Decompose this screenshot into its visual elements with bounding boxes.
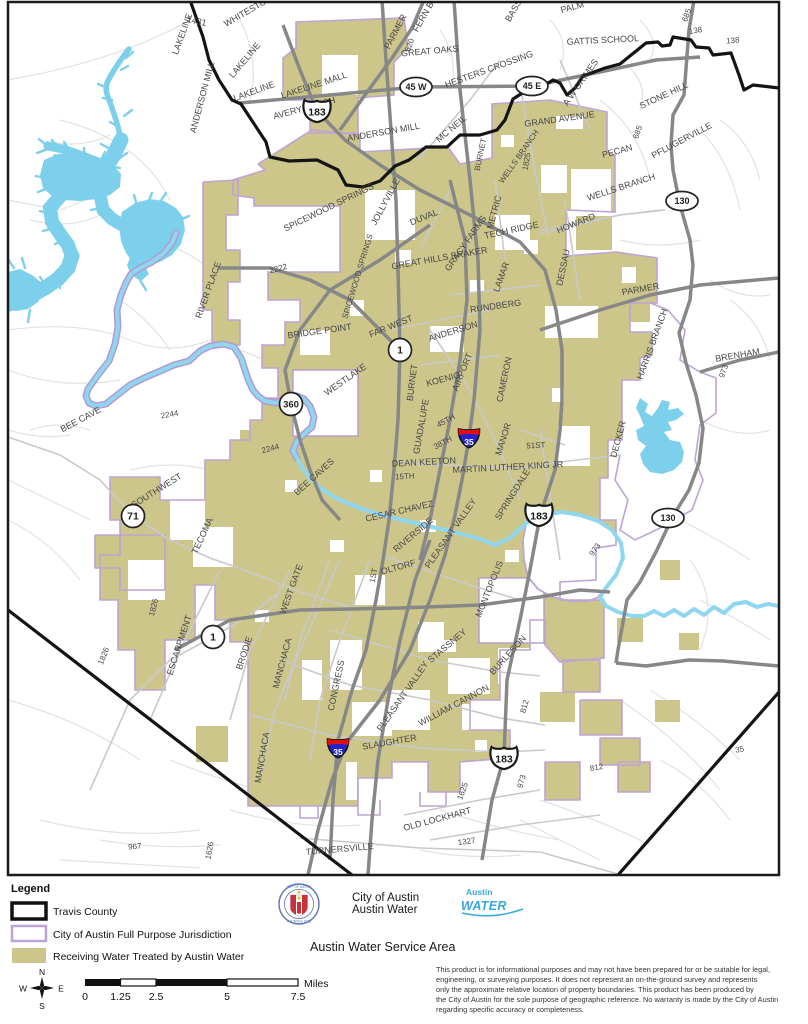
svg-text:Austin: Austin xyxy=(466,887,492,897)
svg-text:S: S xyxy=(39,1001,45,1011)
svg-text:0: 0 xyxy=(82,991,88,1003)
svg-text:This product is for informatio: This product is for informational purpos… xyxy=(436,965,770,974)
svg-text:Miles: Miles xyxy=(304,978,329,990)
svg-text:E: E xyxy=(58,984,64,994)
svg-text:regarding specific accuracy or: regarding specific accuracy or completen… xyxy=(436,1005,584,1014)
svg-text:71: 71 xyxy=(127,511,139,523)
svg-text:only the approximate relative: only the approximate relative location o… xyxy=(436,985,754,994)
svg-text:1: 1 xyxy=(397,345,403,357)
svg-text:183: 183 xyxy=(495,754,513,766)
svg-text:Legend: Legend xyxy=(11,883,50,895)
svg-text:183: 183 xyxy=(530,511,548,523)
svg-text:5: 5 xyxy=(224,991,230,1003)
svg-text:183: 183 xyxy=(308,107,326,119)
svg-text:45 W: 45 W xyxy=(405,82,427,92)
svg-text:130: 130 xyxy=(660,513,675,523)
svg-text:N: N xyxy=(39,967,45,977)
svg-text:1: 1 xyxy=(210,632,216,644)
svg-text:45 E: 45 E xyxy=(523,81,542,91)
svg-text:the City of Austin for the sol: the City of Austin for the sole purpose … xyxy=(436,995,778,1004)
svg-text:15TH: 15TH xyxy=(395,471,415,481)
svg-text:138: 138 xyxy=(726,35,741,45)
svg-text:Receiving Water Treated by Aus: Receiving Water Treated by Austin Water xyxy=(53,951,245,963)
svg-text:W: W xyxy=(19,984,27,994)
svg-text:360: 360 xyxy=(283,400,299,411)
svg-text:Austin Water: Austin Water xyxy=(352,904,418,916)
svg-text:City of Austin: City of Austin xyxy=(352,892,419,904)
svg-text:7.5: 7.5 xyxy=(291,991,306,1003)
svg-text:2.5: 2.5 xyxy=(149,991,164,1003)
svg-text:engineering, or surveying purp: engineering, or surveying purposes. It d… xyxy=(436,975,758,984)
svg-text:967: 967 xyxy=(128,841,143,851)
svg-text:1.25: 1.25 xyxy=(110,991,131,1003)
svg-text:CITY OF AUSTIN: CITY OF AUSTIN xyxy=(287,885,313,889)
svg-text:Austin Water Service Area: Austin Water Service Area xyxy=(310,940,455,954)
svg-text:City of Austin Full Purpose Ju: City of Austin Full Purpose Jurisdiction xyxy=(53,929,232,941)
svg-text:130: 130 xyxy=(674,196,689,206)
svg-text:35: 35 xyxy=(464,437,474,447)
svg-text:Travis County: Travis County xyxy=(53,906,118,918)
svg-text:FOUNDED 1839: FOUNDED 1839 xyxy=(287,920,311,924)
svg-text:35: 35 xyxy=(333,747,343,757)
svg-text:WATER: WATER xyxy=(461,899,507,913)
svg-text:51ST: 51ST xyxy=(526,441,546,451)
